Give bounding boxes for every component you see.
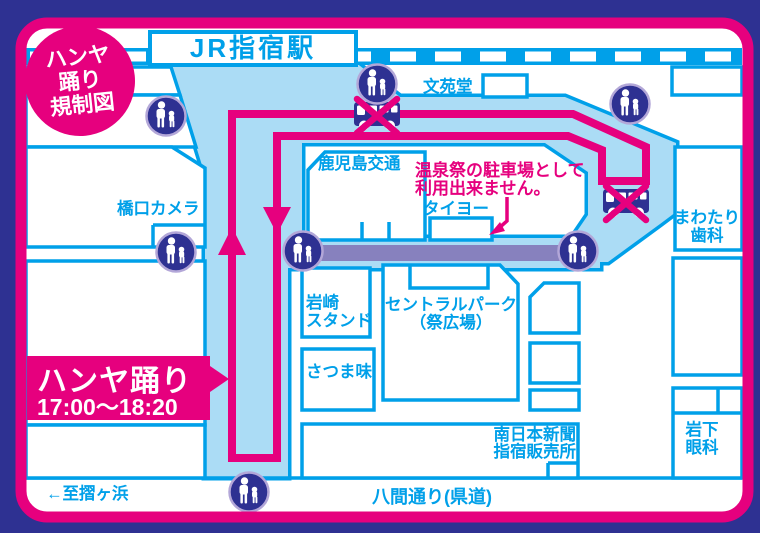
label-minami-nihon-2: 指宿販売所	[494, 441, 577, 461]
label-kagoshima-kotsu: 鹿児島交通	[318, 153, 401, 173]
building-central-park	[383, 265, 518, 400]
label-bunendo: 文苑堂	[423, 76, 473, 96]
pedestrian-icon-1	[147, 97, 186, 136]
label-mawatari-1: まわたり	[674, 208, 740, 227]
pedestrian-icon-4	[157, 233, 196, 272]
warning-line-2: 利用出来ません。	[415, 178, 551, 198]
building-bunendo	[483, 75, 527, 97]
label-iwasaki-1: 岩崎	[305, 292, 340, 312]
pedestrian-icon-7	[230, 473, 269, 512]
railway-line	[26, 48, 742, 65]
label-central-park-1: セントラルパーク	[385, 295, 517, 314]
warning-line-1: 温泉祭の駐車場として	[415, 160, 585, 180]
building-east-mid	[673, 258, 742, 375]
pedestrian-icon-3	[611, 85, 650, 124]
regulation-map: JR指宿駅 文苑堂 鹿児島交通 橋口カメラ タイヨー まわたり 歯科 岩崎 スタ…	[0, 0, 760, 533]
pedestrian-icon-2	[358, 65, 397, 104]
pedestrian-icon-6	[559, 232, 598, 271]
building-west-south	[26, 425, 205, 478]
building-east-small-2	[530, 343, 579, 383]
label-satsuma-aji: さつま味	[306, 361, 373, 381]
label-to-surigahama: ←至摺ヶ浜	[46, 483, 129, 503]
event-banner: ハンヤ踊り 17:00〜18:20	[27, 356, 229, 420]
building-northeast-strip	[672, 67, 742, 95]
label-central-park-2: （祭広場）	[410, 312, 493, 332]
building-east-small-3	[530, 390, 579, 410]
label-iwashita-1: 岩下	[685, 419, 719, 439]
station-label: JR指宿駅	[190, 33, 316, 63]
building-taiyo	[430, 218, 492, 240]
label-iwasaki-2: スタンド	[306, 311, 372, 330]
label-mawatari-2: 歯科	[691, 225, 725, 245]
pedestrian-zone-bar	[300, 245, 586, 261]
pedestrian-icon-5	[284, 232, 323, 271]
building-east-small-1	[530, 283, 579, 333]
label-hakkendori: 八間通り(県道)	[372, 486, 492, 507]
label-minami-nihon-1: 南日本新聞	[494, 424, 577, 444]
label-taiyo: タイヨー	[423, 199, 489, 218]
label-iwashita-2: 眼科	[686, 437, 720, 457]
event-banner-time: 17:00〜18:20	[37, 394, 178, 420]
label-hashiguchi-camera: 橋口カメラ	[117, 198, 200, 218]
